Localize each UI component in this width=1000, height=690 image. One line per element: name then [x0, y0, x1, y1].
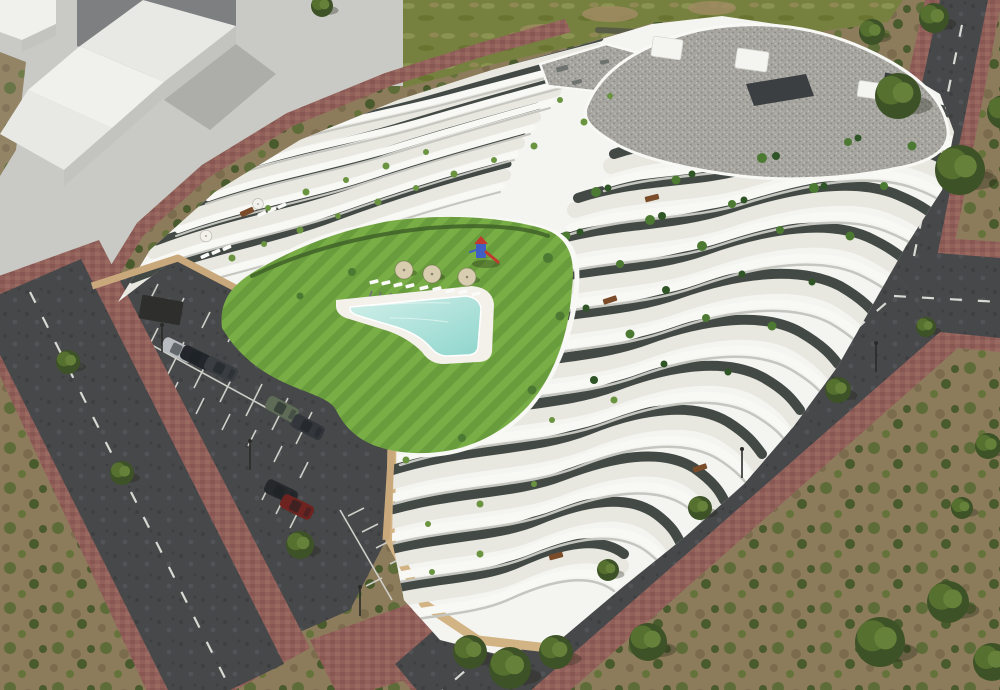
umbrella: [458, 268, 476, 286]
roof-stair-bulkhead: [735, 48, 769, 72]
render-canvas: [0, 0, 1000, 690]
umbrella: [395, 261, 413, 279]
shrub-tree: [975, 433, 1000, 459]
umbrella: [200, 230, 212, 242]
dirt-patch: [688, 1, 736, 15]
dirt-patch: [582, 6, 638, 22]
umbrella: [423, 265, 441, 283]
umbrella: [253, 199, 264, 210]
roof-stair-bulkhead: [651, 36, 683, 60]
